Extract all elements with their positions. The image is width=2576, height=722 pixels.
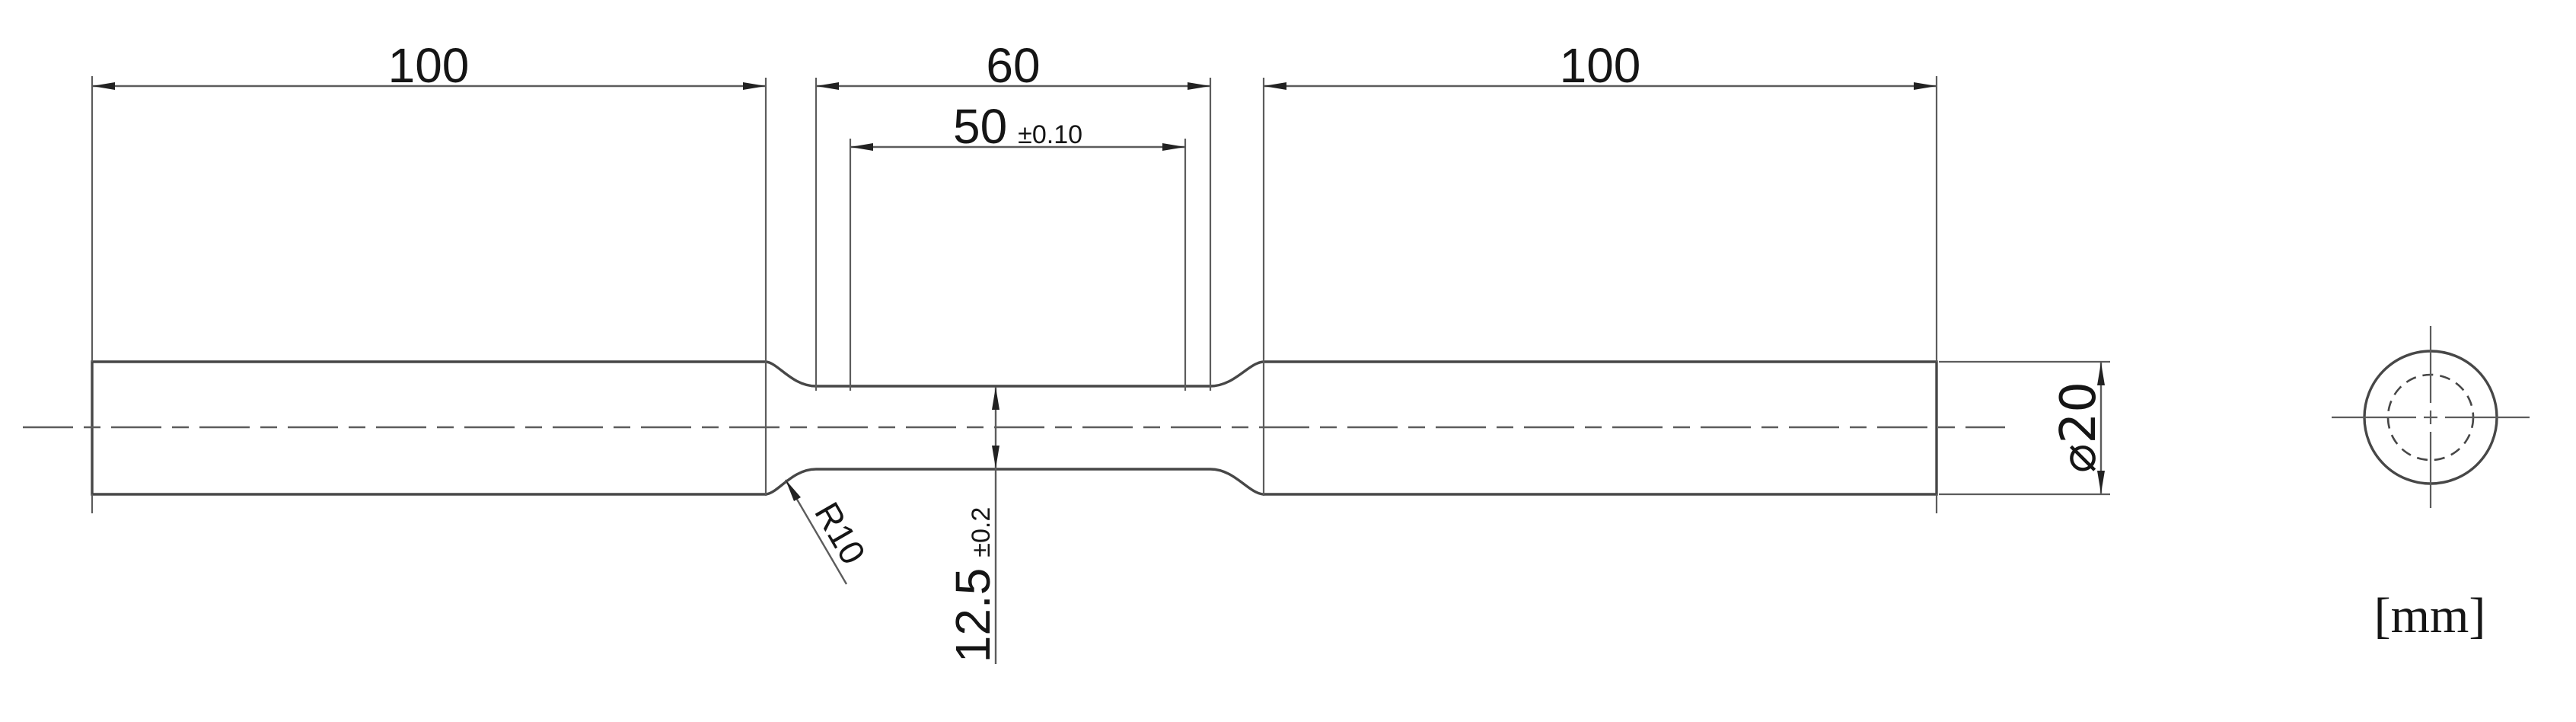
- drawing-canvas: 100 60 100 50±0.10: [0, 0, 2576, 722]
- arrowhead-right: [743, 82, 766, 90]
- dim-tolerance: ±0.2: [967, 507, 996, 557]
- arrowhead-bottom: [992, 446, 999, 468]
- arrowhead-left: [850, 143, 873, 151]
- section-centermark: [2332, 326, 2530, 508]
- arrowhead-left: [816, 82, 839, 90]
- dim-value: 50: [953, 99, 1007, 154]
- arrowhead-top: [992, 387, 999, 410]
- dim-gauge-diameter: 12.5±0.2: [945, 387, 1000, 664]
- tensile-specimen-drawing: 100 60 100 50±0.10: [0, 0, 2576, 722]
- arrowhead-left: [1264, 82, 1286, 90]
- dim-value-reduced-section: 60: [986, 38, 1040, 93]
- arrowhead-right: [1188, 82, 1210, 90]
- arrowhead-right: [1162, 143, 1185, 151]
- arrowhead: [786, 480, 801, 501]
- dim-value-left-grip: 100: [388, 38, 470, 93]
- arrowhead-right: [1914, 82, 1937, 90]
- dim-value-gauge-diameter: 12.5±0.2: [945, 507, 1000, 663]
- dim-grip-diameter: ⌀20: [2051, 363, 2107, 494]
- dim-value: 12.5: [945, 568, 1000, 663]
- dim-fillet-radius: R10: [786, 480, 873, 584]
- dim-reduced-section-length: 60: [816, 38, 1210, 93]
- dim-value-grip-diameter: ⌀20: [2051, 382, 2107, 473]
- dim-gauge-length: 50±0.10: [850, 99, 1185, 154]
- dim-tolerance: ±0.10: [1018, 120, 1082, 149]
- arrowhead-bottom: [2097, 471, 2105, 494]
- units-label: [mm]: [2374, 588, 2486, 644]
- extension-lines: [92, 76, 2110, 513]
- dim-left-grip-length: 100: [92, 38, 766, 93]
- front-view: 100 60 100 50±0.10: [23, 38, 2110, 664]
- section-view: [2332, 326, 2530, 508]
- dim-value-right-grip: 100: [1560, 38, 1641, 93]
- arrowhead-left: [92, 82, 115, 90]
- dim-value-gauge-length: 50±0.10: [953, 99, 1082, 154]
- dim-right-grip-length: 100: [1264, 38, 1937, 93]
